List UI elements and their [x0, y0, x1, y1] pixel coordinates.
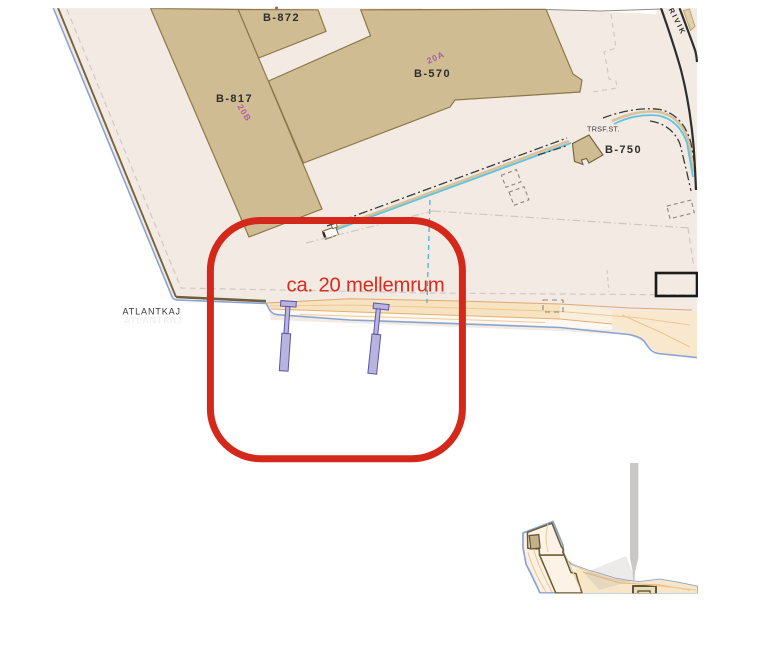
svg-text:B-817: B-817 [216, 93, 253, 105]
svg-text:ATLANTKAJ: ATLANTKAJ [124, 316, 182, 326]
svg-text:B-872: B-872 [263, 12, 300, 24]
svg-text:ca. 20 mellemrum: ca. 20 mellemrum [287, 275, 445, 297]
svg-text:B-750: B-750 [605, 144, 642, 156]
svg-text:B-570: B-570 [414, 68, 451, 80]
svg-text:TRSF.ST.: TRSF.ST. [587, 125, 620, 134]
